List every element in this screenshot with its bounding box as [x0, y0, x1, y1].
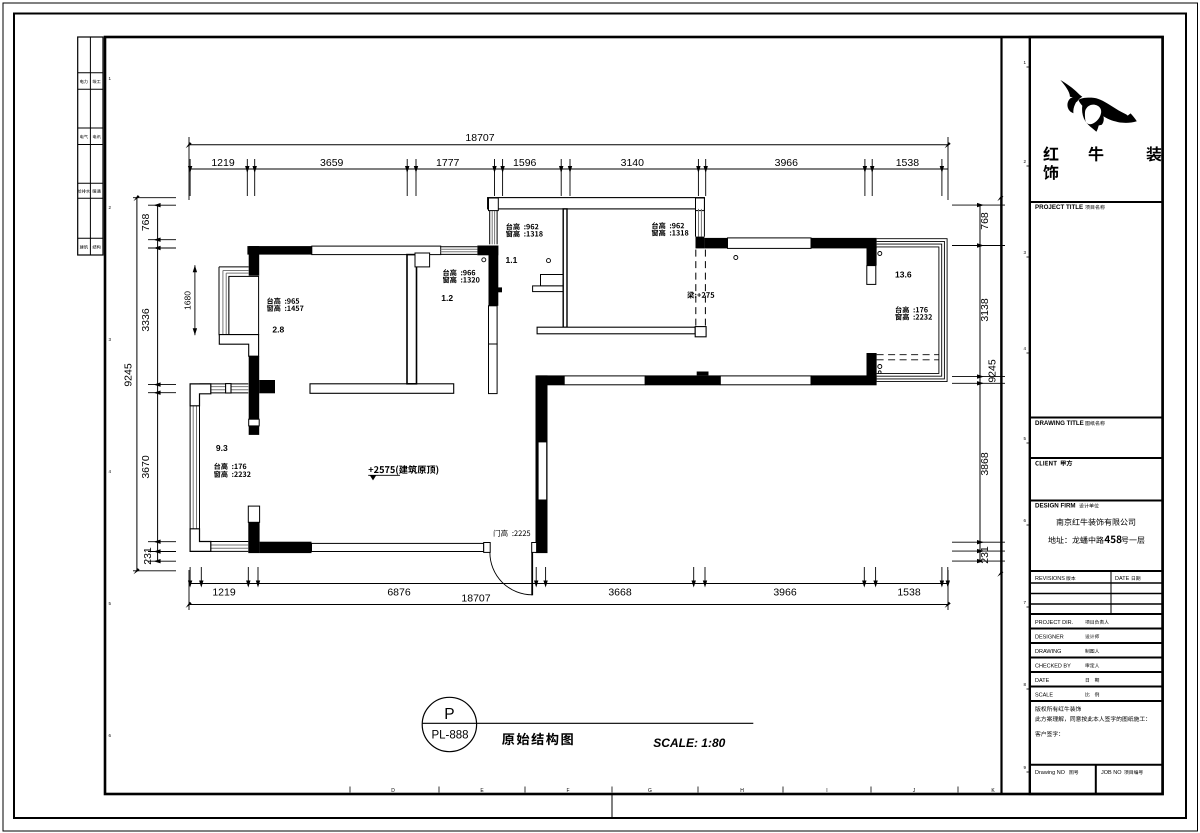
svg-text:P: P: [444, 706, 454, 723]
svg-text:CHECKED BY: CHECKED BY: [1035, 663, 1071, 669]
svg-text:REVISIONS: REVISIONS: [1035, 576, 1065, 582]
svg-text:SCALE: SCALE: [1035, 692, 1053, 698]
svg-text:PL-888: PL-888: [431, 730, 468, 742]
svg-text:SCALE: 1:80: SCALE: 1:80: [653, 736, 725, 750]
svg-text:9245: 9245: [987, 359, 999, 383]
svg-text:DATE: DATE: [1035, 678, 1050, 684]
svg-text:3966: 3966: [773, 587, 797, 599]
svg-text:9.3: 9.3: [216, 443, 228, 453]
svg-text:1538: 1538: [897, 587, 921, 599]
svg-text:3966: 3966: [775, 157, 799, 169]
svg-text:DESIGNER: DESIGNER: [1035, 634, 1064, 640]
svg-text:1.2: 1.2: [441, 293, 453, 303]
svg-text:Drawing NO: Drawing NO: [1035, 770, 1066, 776]
svg-text:JOB NO: JOB NO: [1101, 770, 1122, 776]
svg-text:18707: 18707: [465, 132, 494, 144]
svg-text:3868: 3868: [979, 452, 991, 476]
svg-text:3140: 3140: [621, 157, 645, 169]
svg-text:3659: 3659: [320, 157, 344, 169]
svg-text:231: 231: [142, 547, 154, 565]
svg-text:768: 768: [140, 213, 152, 231]
svg-text:1680: 1680: [183, 291, 193, 310]
svg-text:1777: 1777: [436, 157, 460, 169]
svg-text:F: F: [566, 788, 569, 794]
svg-text:6876: 6876: [387, 587, 411, 599]
svg-text:3668: 3668: [608, 587, 632, 599]
svg-text:3138: 3138: [979, 298, 991, 322]
svg-text:18707: 18707: [461, 593, 490, 605]
svg-text:3336: 3336: [140, 308, 152, 332]
svg-text:D: D: [391, 788, 395, 794]
svg-text:I: I: [826, 788, 827, 794]
svg-text:H: H: [740, 788, 744, 794]
svg-text:2.8: 2.8: [272, 325, 284, 335]
svg-text:DRAWING TITLE: DRAWING TITLE: [1035, 420, 1084, 427]
svg-text:DATE: DATE: [1115, 576, 1130, 582]
svg-text:231: 231: [979, 546, 991, 564]
svg-text:DRAWING: DRAWING: [1035, 649, 1061, 655]
svg-text:1596: 1596: [513, 157, 537, 169]
svg-text:1219: 1219: [211, 157, 235, 169]
svg-text:9245: 9245: [123, 363, 135, 387]
svg-text:1219: 1219: [212, 587, 236, 599]
svg-text:PROJECT DIR.: PROJECT DIR.: [1035, 620, 1074, 626]
svg-text:1538: 1538: [896, 157, 920, 169]
svg-text:3670: 3670: [140, 455, 152, 479]
svg-text:1.1: 1.1: [506, 255, 518, 265]
svg-text:13.6: 13.6: [895, 269, 912, 279]
svg-text:G: G: [648, 788, 652, 794]
svg-text:DESIGN FIRM: DESIGN FIRM: [1035, 503, 1076, 510]
svg-text:PROJECT TITLE: PROJECT TITLE: [1035, 204, 1083, 211]
svg-text:768: 768: [979, 212, 991, 230]
